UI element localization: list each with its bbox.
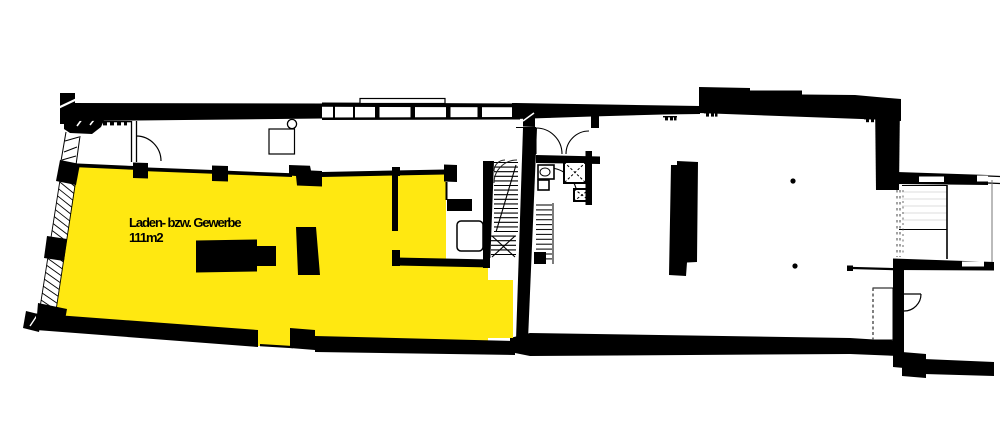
svg-text:Laden- bzw. Gewerbe: Laden- bzw. Gewerbe xyxy=(129,215,241,230)
svg-text:111m2: 111m2 xyxy=(129,230,163,245)
